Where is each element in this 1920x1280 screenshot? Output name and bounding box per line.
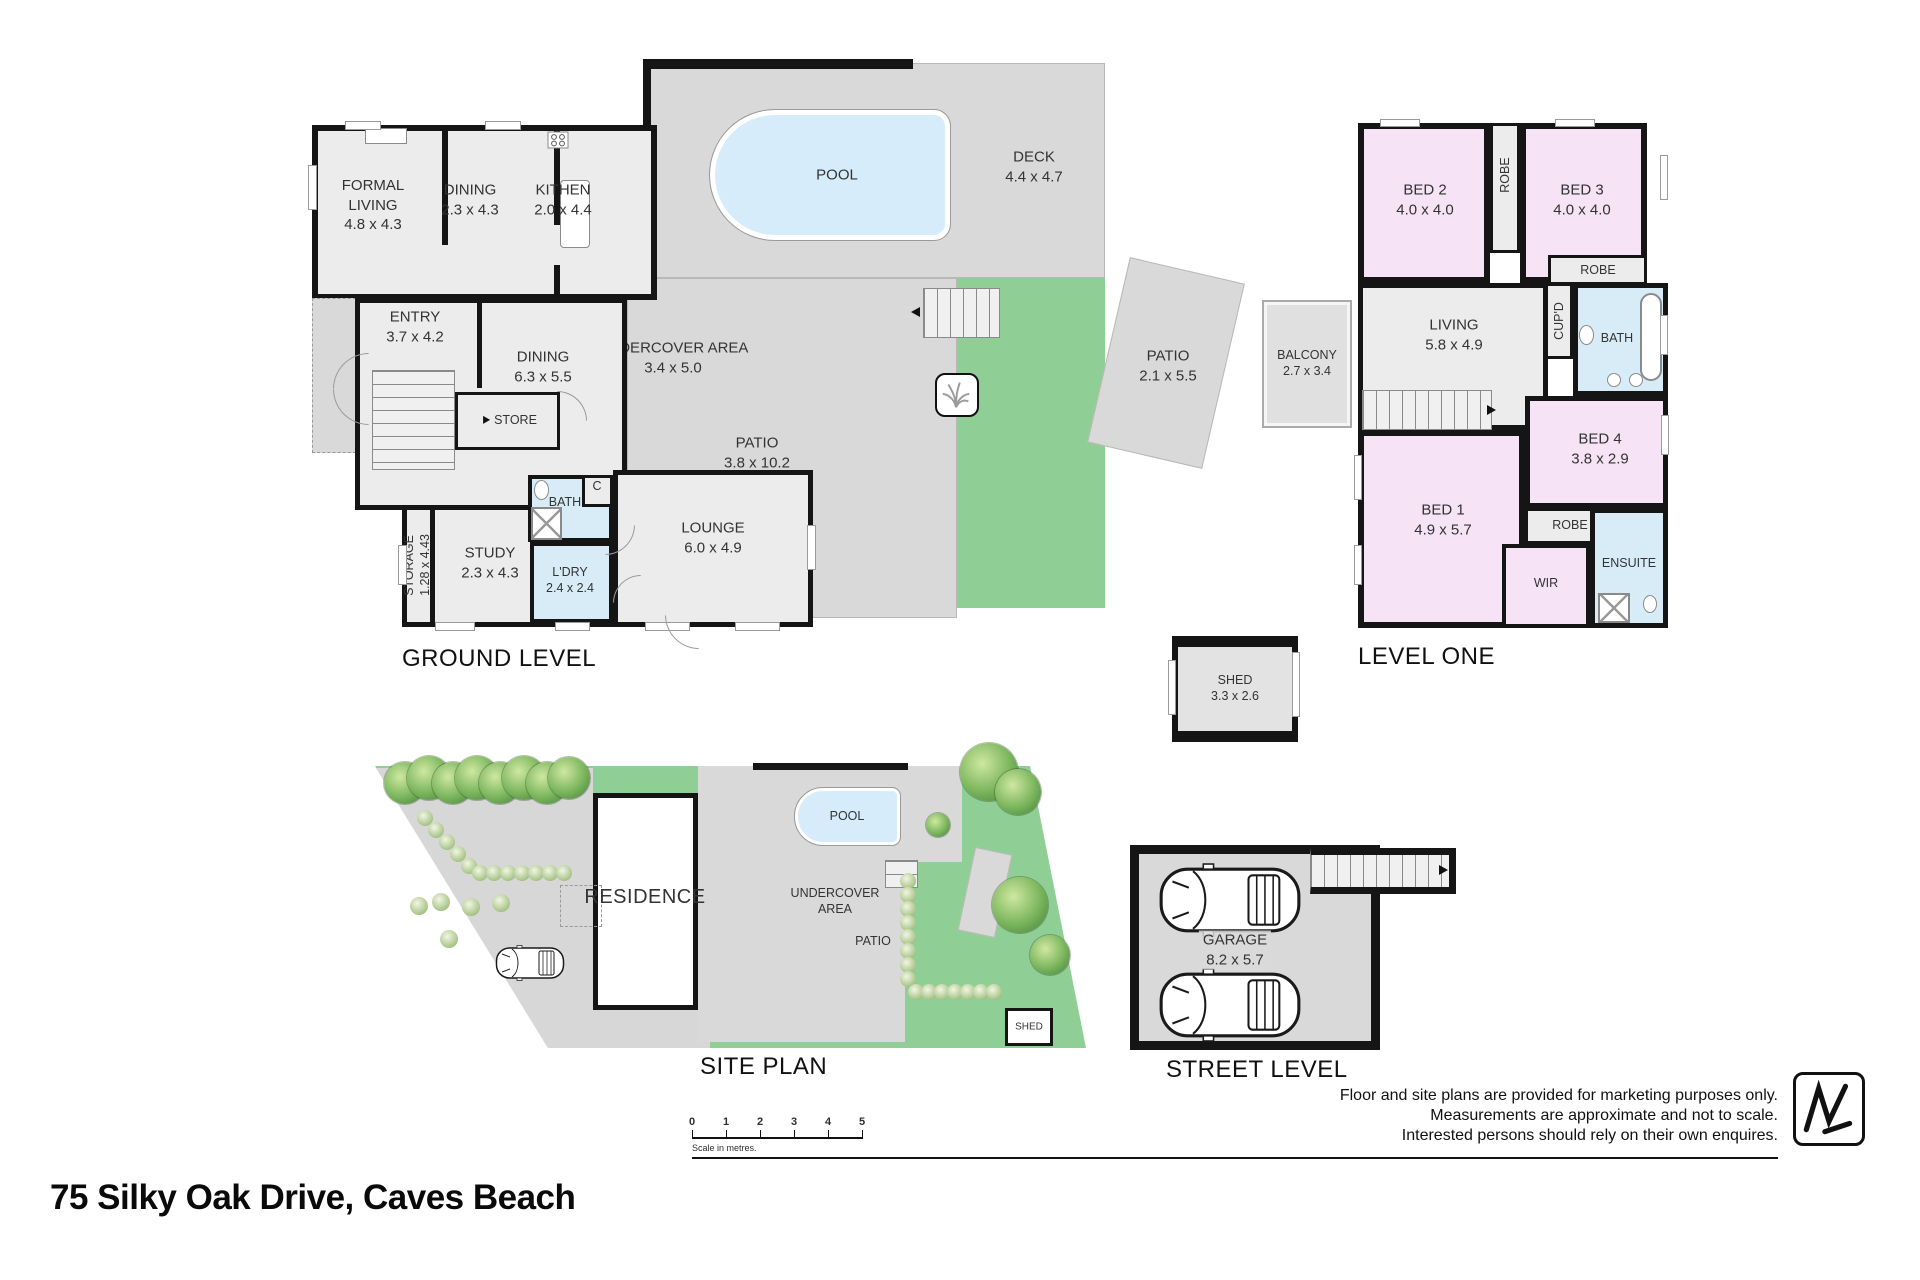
window [555,622,590,631]
basin-icon [1629,373,1643,387]
bush [492,894,510,912]
window [1555,119,1595,127]
ensuite-label: ENSUITE [1602,555,1656,571]
scale-tick-label: 3 [791,1116,797,1128]
bath-l1-label: BATH [1601,330,1633,346]
robe-a-label: ROBE [1497,157,1513,192]
window [308,165,317,210]
logo-mark [1796,1075,1862,1143]
bed2-label: BED 24.0 x 4.0 [1396,181,1454,220]
shower-icon [1598,593,1630,623]
stairs [372,370,455,470]
kitchen-label: KITHEN2.0 x 4.4 [534,181,592,220]
wall [753,763,908,770]
laundry-label: L'DRY2.4 x 2.4 [546,564,594,597]
entry-label: ENTRY3.7 x 4.2 [386,308,444,347]
study-label: STUDY2.3 x 4.3 [461,544,519,583]
site-undercover-label: UNDERCOVER AREA [789,885,881,918]
disclaimer-line: Interested persons should rely on their … [1300,1126,1778,1146]
stairs [1362,390,1492,430]
bush [432,893,450,911]
scale-tick [794,1130,795,1137]
dining-b-label: DINING6.3 x 5.5 [514,348,572,387]
site-plan: RESIDENCE POOL UNDERCOVER AREA PATIO SHE… [370,755,1110,1090]
ground-level-title: GROUND LEVEL [402,645,596,673]
agency-logo [1793,1072,1865,1146]
scale-tick [692,1130,693,1137]
wall [554,265,560,300]
window [435,622,475,631]
car-icon [1158,968,1302,1042]
robe-c-label: ROBE [1552,517,1587,533]
tree [1030,935,1070,975]
bush [440,930,458,948]
ground-level-plan: POOL DECK4.4 x 4.7 UNDERCOVER AREA3.4 x … [305,55,1120,670]
window [1660,155,1668,200]
level-one-plan: BALCONY2.7 x 3.4 BED 24.0 x 4.0 ROBE BED… [1255,115,1675,675]
window [1661,415,1669,455]
wall [477,298,482,388]
window [485,121,521,130]
store-arrow-icon [483,416,490,424]
wir-label: WIR [1534,575,1558,591]
stairs-arrow [1487,405,1496,415]
formal-living-label: FORMAL LIVING4.8 x 4.3 [331,176,415,235]
window [345,121,381,130]
scale-bar: 0 1 2 3 4 5 Scale in metres. [692,1116,892,1160]
window [1660,315,1668,355]
lounge-label: LOUNGE6.0 x 4.9 [681,519,744,558]
stairs-arrow [911,307,920,317]
basin-icon [1607,373,1621,387]
window [1354,455,1362,500]
tree [995,769,1041,815]
store-label: STORE [483,412,537,428]
window [1292,652,1300,717]
balcony-label: BALCONY2.7 x 3.4 [1277,347,1337,380]
patio-main-label: PATIO3.8 x 10.2 [724,434,790,473]
garage-label: GARAGE8.2 x 5.7 [1199,931,1271,970]
tree [992,877,1048,933]
tree [926,813,950,837]
level-one-title: LEVEL ONE [1358,643,1495,671]
garage-stairs [1310,848,1456,894]
floorplan-page: POOL DECK4.4 x 4.7 UNDERCOVER AREA3.4 x … [0,0,1920,1280]
scale-tick [760,1130,761,1137]
toilet-icon [1579,325,1594,345]
tree [548,757,590,799]
wall [643,59,913,69]
window [1354,545,1362,585]
bed3-label: BED 34.0 x 4.0 [1553,181,1611,220]
divider-rule [692,1157,1778,1159]
disclaimer-line: Measurements are approximate and not to … [1300,1106,1778,1126]
dining-a-label: DINING2.3 x 4.3 [441,181,499,220]
pool-label: POOL [816,165,858,185]
closet-label: C [592,478,601,494]
plant-icon [935,373,979,417]
street-level-plan: GARAGE8.2 x 5.7 STREET LEVEL [1125,838,1470,1083]
window [1380,119,1420,127]
toilet-icon [1643,595,1657,613]
site-shed-label: SHED [1015,1021,1043,1034]
car-icon [495,942,565,984]
car-icon [1158,863,1302,937]
scale-tick [862,1130,863,1137]
bed1-label: BED 14.9 x 5.7 [1414,501,1472,540]
disclaimer-line: Floor and site plans are provided for ma… [1300,1086,1778,1106]
shed-plan-label: SHED3.3 x 2.6 [1211,672,1259,705]
scale-tick-label: 4 [825,1116,831,1128]
outdoor-stairs [923,288,1000,338]
scale-tick-label: 1 [723,1116,729,1128]
bush [986,984,1002,1000]
stove-icon [547,131,569,149]
site-pool-label: POOL [830,808,865,824]
bush [556,865,572,881]
scale-line [692,1137,863,1139]
window [398,545,407,585]
bath-label: BATH [549,494,581,510]
disclaimer: Floor and site plans are provided for ma… [1300,1086,1778,1146]
window [735,622,780,631]
site-plan-title: SITE PLAN [700,1053,827,1081]
cupboard-label: CUP'D [1551,302,1567,340]
scale-tick-label: 2 [757,1116,763,1128]
bathtub-icon [1640,293,1662,381]
window [1168,660,1176,715]
wall [643,59,651,129]
site-patio-label: PATIO [855,933,891,949]
toilet-icon [534,480,549,500]
scale-tick-label: 0 [689,1116,695,1128]
stairs-arrow [1439,865,1448,875]
patio-detached-label: PATIO2.1 x 5.5 [1139,347,1197,386]
fireplace-icon [365,128,407,144]
robe-b-label: ROBE [1580,262,1615,278]
scale-tick [828,1130,829,1137]
street-level-title: STREET LEVEL [1166,1056,1348,1084]
page-title: 75 Silky Oak Drive, Caves Beach [50,1178,575,1218]
deck-label: DECK4.4 x 4.7 [1005,148,1063,187]
scale-caption: Scale in metres. [692,1143,757,1153]
bed4-label: BED 43.8 x 2.9 [1571,430,1629,469]
shower-icon [531,507,562,540]
bush [410,897,428,915]
scale-tick [726,1130,727,1137]
living-label: LIVING5.8 x 4.9 [1425,316,1483,355]
scale-tick-label: 5 [859,1116,865,1128]
window [807,525,816,570]
site-residence-label: RESIDENCE [584,884,705,910]
bush [462,898,480,916]
door-arc [665,615,699,649]
